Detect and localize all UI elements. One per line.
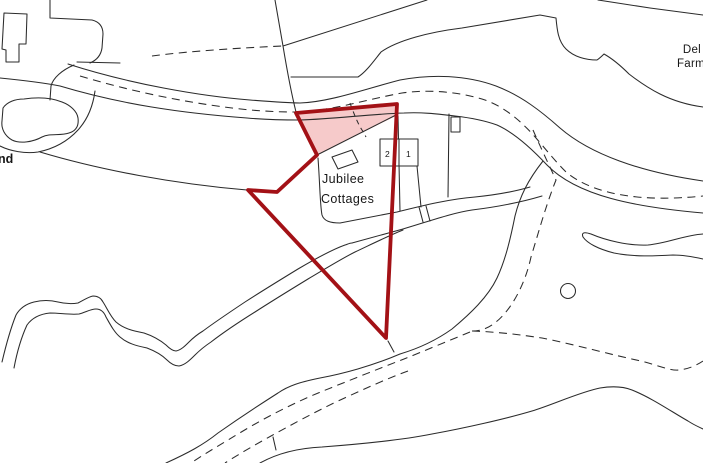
plot-west-boundary: [318, 158, 340, 223]
boundary-northeast: [283, 0, 427, 46]
boundary-vertical-left: [275, 0, 296, 112]
building-shed: [332, 150, 358, 169]
sw-track-upper: [166, 354, 400, 463]
footpath-dashed-topleft: [152, 46, 282, 56]
fence-top-left: [77, 62, 120, 63]
sw-track-dashed-1: [191, 332, 470, 463]
label-property-name-line2: Cottages: [321, 192, 374, 206]
label-farm-name-line2: Farm: [677, 58, 703, 70]
stream-lower: [14, 230, 403, 368]
site-plan-map: Jubilee Cottages 2 1 Del Farm nd: [0, 0, 703, 463]
lane-dashed-companion: [472, 130, 556, 331]
sw-track-dashed-2: [225, 371, 408, 463]
building-top-left: [2, 13, 27, 62]
label-farm-name-line1: Del: [683, 44, 701, 56]
enclosure-top-left: [50, 0, 103, 63]
boundary-top-right: [598, 0, 703, 15]
culvert-ticks: [419, 206, 430, 222]
label-left-edge-truncated: nd: [0, 152, 13, 166]
well-circle: [561, 284, 576, 299]
driveway-hook: [50, 65, 74, 100]
label-property-name-line1: Jubilee: [322, 172, 364, 186]
label-plot-number-1: 1: [406, 149, 411, 159]
building-small-outbuilding: [451, 117, 460, 132]
pond-outline: [2, 98, 78, 142]
site-plan-canvas: Jubilee Cottages 2 1 Del Farm nd: [0, 0, 703, 463]
label-plot-number-2: 2: [385, 149, 390, 159]
stream-upper: [2, 243, 352, 362]
road-centerline-dashed: [80, 76, 703, 198]
field-boundary-to-red-point: [40, 152, 247, 190]
plot-east-boundary: [417, 166, 421, 207]
junction-tick: [273, 437, 276, 450]
boundary-vertical-right-of-cottages: [448, 114, 449, 197]
bottom-field-boundary: [260, 387, 703, 463]
lane-curve-from-road: [400, 161, 543, 354]
footpath-dashed-east: [472, 331, 703, 370]
rear-track-lower: [352, 196, 542, 243]
tree-belt-hook: [582, 233, 703, 259]
junction-connector: [388, 341, 394, 352]
